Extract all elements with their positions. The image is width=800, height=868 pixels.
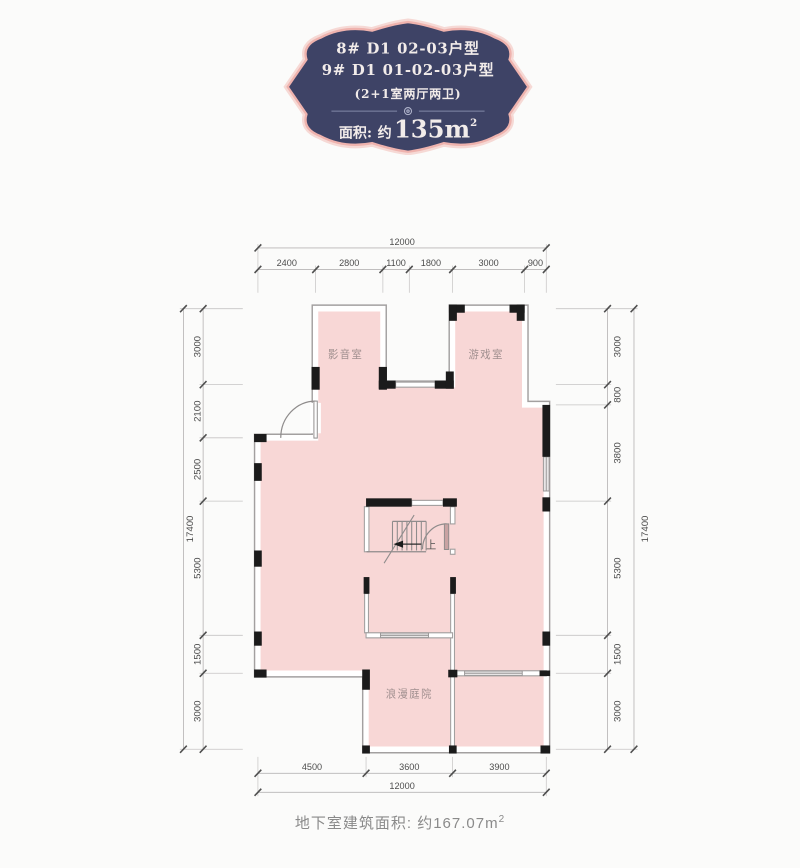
dim-right-overall: 17400 — [640, 516, 650, 543]
dim-bottom-overall: 12000 — [389, 781, 414, 791]
room-label-game: 游戏室 — [469, 348, 504, 361]
dim-left-0: 3000 — [193, 336, 203, 357]
badge-line2: 9# D1 01-02-03户型 — [322, 61, 495, 79]
badge-line1: 8# D1 02-03户型 — [336, 39, 479, 57]
caption-value: 167.07m — [433, 815, 498, 832]
dim-left-5: 3000 — [193, 701, 203, 722]
dim-right-3: 5300 — [612, 558, 622, 579]
dim-top-1: 2800 — [339, 258, 359, 268]
dim-left-1: 2100 — [193, 401, 203, 422]
dimensions-bottom: 4500 3600 3900 12000 — [255, 757, 550, 796]
dimensions-right: 3000 800 3800 5300 1500 3000 17400 — [556, 305, 650, 753]
dim-top-3: 1800 — [421, 258, 441, 268]
unit-badge: 8# D1 02-03户型 9# D1 01-02-03户型 (2+1室两厅两卫… — [283, 18, 533, 155]
dimensions-top: 12000 2400 2800 1100 1800 3000 900 — [255, 237, 550, 293]
entry-door-leaf — [314, 401, 317, 438]
dim-right-2: 3800 — [612, 442, 622, 463]
dim-top-5: 900 — [528, 258, 543, 268]
room-label-media: 影音室 — [328, 348, 363, 361]
dim-left-overall: 17400 — [185, 516, 195, 543]
floor-plan: 上 影音室 游戏室 浪漫庭院 12000 2400 2800 1100 1800… — [157, 215, 652, 848]
room-label-courtyard: 浪漫庭院 — [386, 687, 433, 700]
dim-right-4: 1500 — [612, 644, 622, 665]
dim-left-4: 1500 — [193, 644, 203, 665]
dim-top-overall: 12000 — [389, 237, 414, 247]
badge-line3: (2+1室两厅两卫) — [355, 86, 462, 101]
dim-left-2: 2500 — [193, 459, 203, 480]
dim-top-4: 3000 — [478, 258, 498, 268]
caption-prefix: 地下室建筑面积: 约 — [295, 815, 433, 832]
area-superscript: 2 — [470, 117, 477, 129]
dim-right-1: 800 — [612, 387, 622, 403]
floorplan-page: 8# D1 02-03户型 9# D1 01-02-03户型 (2+1室两厅两卫… — [0, 0, 800, 868]
stair-door-leaf — [444, 524, 448, 550]
dimensions-left: 3000 2100 2500 5300 1500 3000 17400 — [180, 305, 243, 753]
dim-top-0: 2400 — [277, 258, 297, 268]
stair-up-label: 上 — [426, 539, 436, 551]
dim-left-3: 5300 — [193, 558, 203, 579]
dim-top-2: 1100 — [386, 258, 406, 268]
dim-bottom-1: 3600 — [399, 762, 419, 772]
dim-bottom-2: 3900 — [489, 762, 509, 772]
caption-superscript: 2 — [499, 814, 506, 825]
dim-right-0: 3000 — [612, 336, 622, 357]
dim-bottom-0: 4500 — [302, 762, 322, 772]
dim-right-5: 3000 — [612, 701, 622, 722]
area-label: 面积: — [339, 125, 372, 142]
area-value: 135m — [394, 115, 471, 144]
area-caption: 地下室建筑面积: 约167.07m2 — [0, 812, 800, 833]
area-approx: 约 — [378, 125, 392, 142]
